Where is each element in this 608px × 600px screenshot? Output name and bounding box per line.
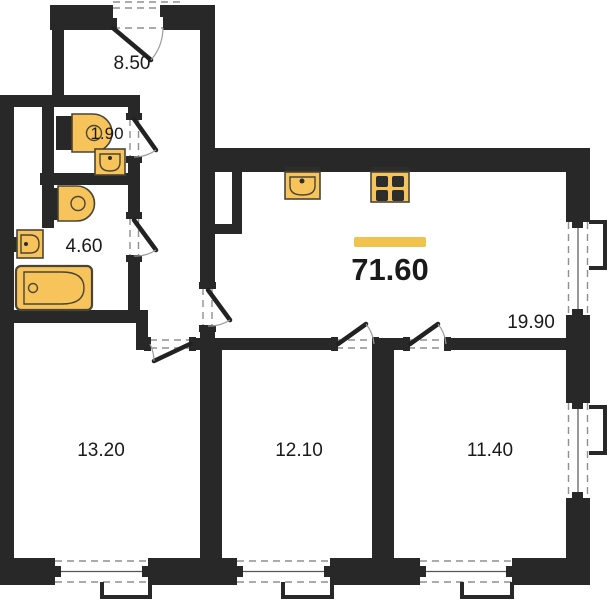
bedroom-left-door (144, 337, 196, 361)
stove-icon (371, 167, 409, 202)
window-bottom-left (54, 561, 149, 582)
total-area-label: 71.60 (351, 252, 429, 287)
sink-icon-wc (95, 149, 125, 175)
window-right-lower (569, 402, 606, 499)
toilet-icon-bathroom (44, 186, 95, 221)
bathroom-door (126, 212, 156, 262)
bathtub-icon (16, 266, 92, 310)
bedroom-right-area-label: 11.40 (467, 440, 513, 461)
window-right-upper (569, 221, 606, 316)
wc-door (126, 113, 156, 163)
bedroom-left-area-label: 13.20 (77, 440, 125, 461)
sink-icon-bathroom (14, 230, 43, 258)
kitchen-sink-icon (285, 167, 320, 199)
window-bottom-right (419, 561, 513, 582)
hallway-area-label: 8.50 (114, 53, 151, 74)
bedroom-middle-area-label: 12.10 (275, 440, 323, 461)
floor-plan-drawing: 8.50 1.90 4.60 19.90 13.20 12.10 11.40 7… (0, 0, 608, 600)
bedroom-middle-door (331, 324, 379, 351)
window-bottom-middle (236, 561, 331, 582)
total-area: 71.60 (351, 237, 429, 287)
total-area-underline (354, 237, 426, 247)
living-kitchen-area-label: 19.90 (507, 312, 555, 333)
floor-plan: 8.50 1.90 4.60 19.90 13.20 12.10 11.40 7… (0, 0, 608, 600)
living-room-door (199, 282, 230, 332)
wc-area-label: 1.90 (90, 124, 123, 143)
bathroom-area-label: 4.60 (66, 236, 103, 257)
bedroom-right-door (403, 324, 451, 351)
